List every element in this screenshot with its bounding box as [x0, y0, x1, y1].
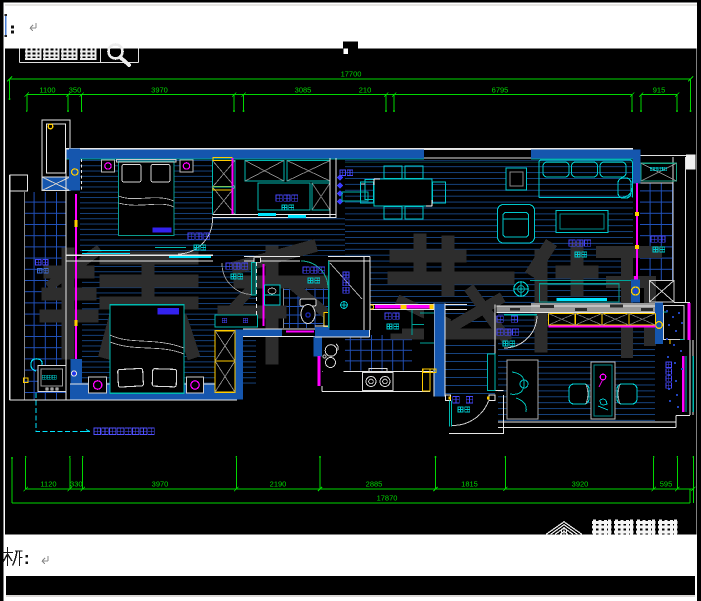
svg-text:210: 210: [359, 86, 372, 95]
svg-text:17870: 17870: [377, 494, 398, 503]
svg-text:2885: 2885: [366, 480, 383, 489]
svg-text:1120: 1120: [40, 480, 56, 489]
svg-text:350: 350: [69, 86, 82, 95]
svg-text:1815: 1815: [461, 480, 478, 489]
svg-text:330: 330: [70, 480, 83, 489]
svg-text:1100: 1100: [39, 86, 55, 95]
svg-text:3970: 3970: [151, 86, 168, 95]
svg-text:17700: 17700: [341, 70, 362, 79]
svg-text:595: 595: [660, 480, 673, 489]
svg-text:3085: 3085: [295, 86, 312, 95]
svg-text:6795: 6795: [492, 86, 509, 95]
svg-text:915: 915: [653, 86, 666, 95]
svg-text:2190: 2190: [270, 480, 287, 489]
svg-text:3970: 3970: [152, 480, 169, 489]
svg-text:3920: 3920: [572, 480, 589, 489]
